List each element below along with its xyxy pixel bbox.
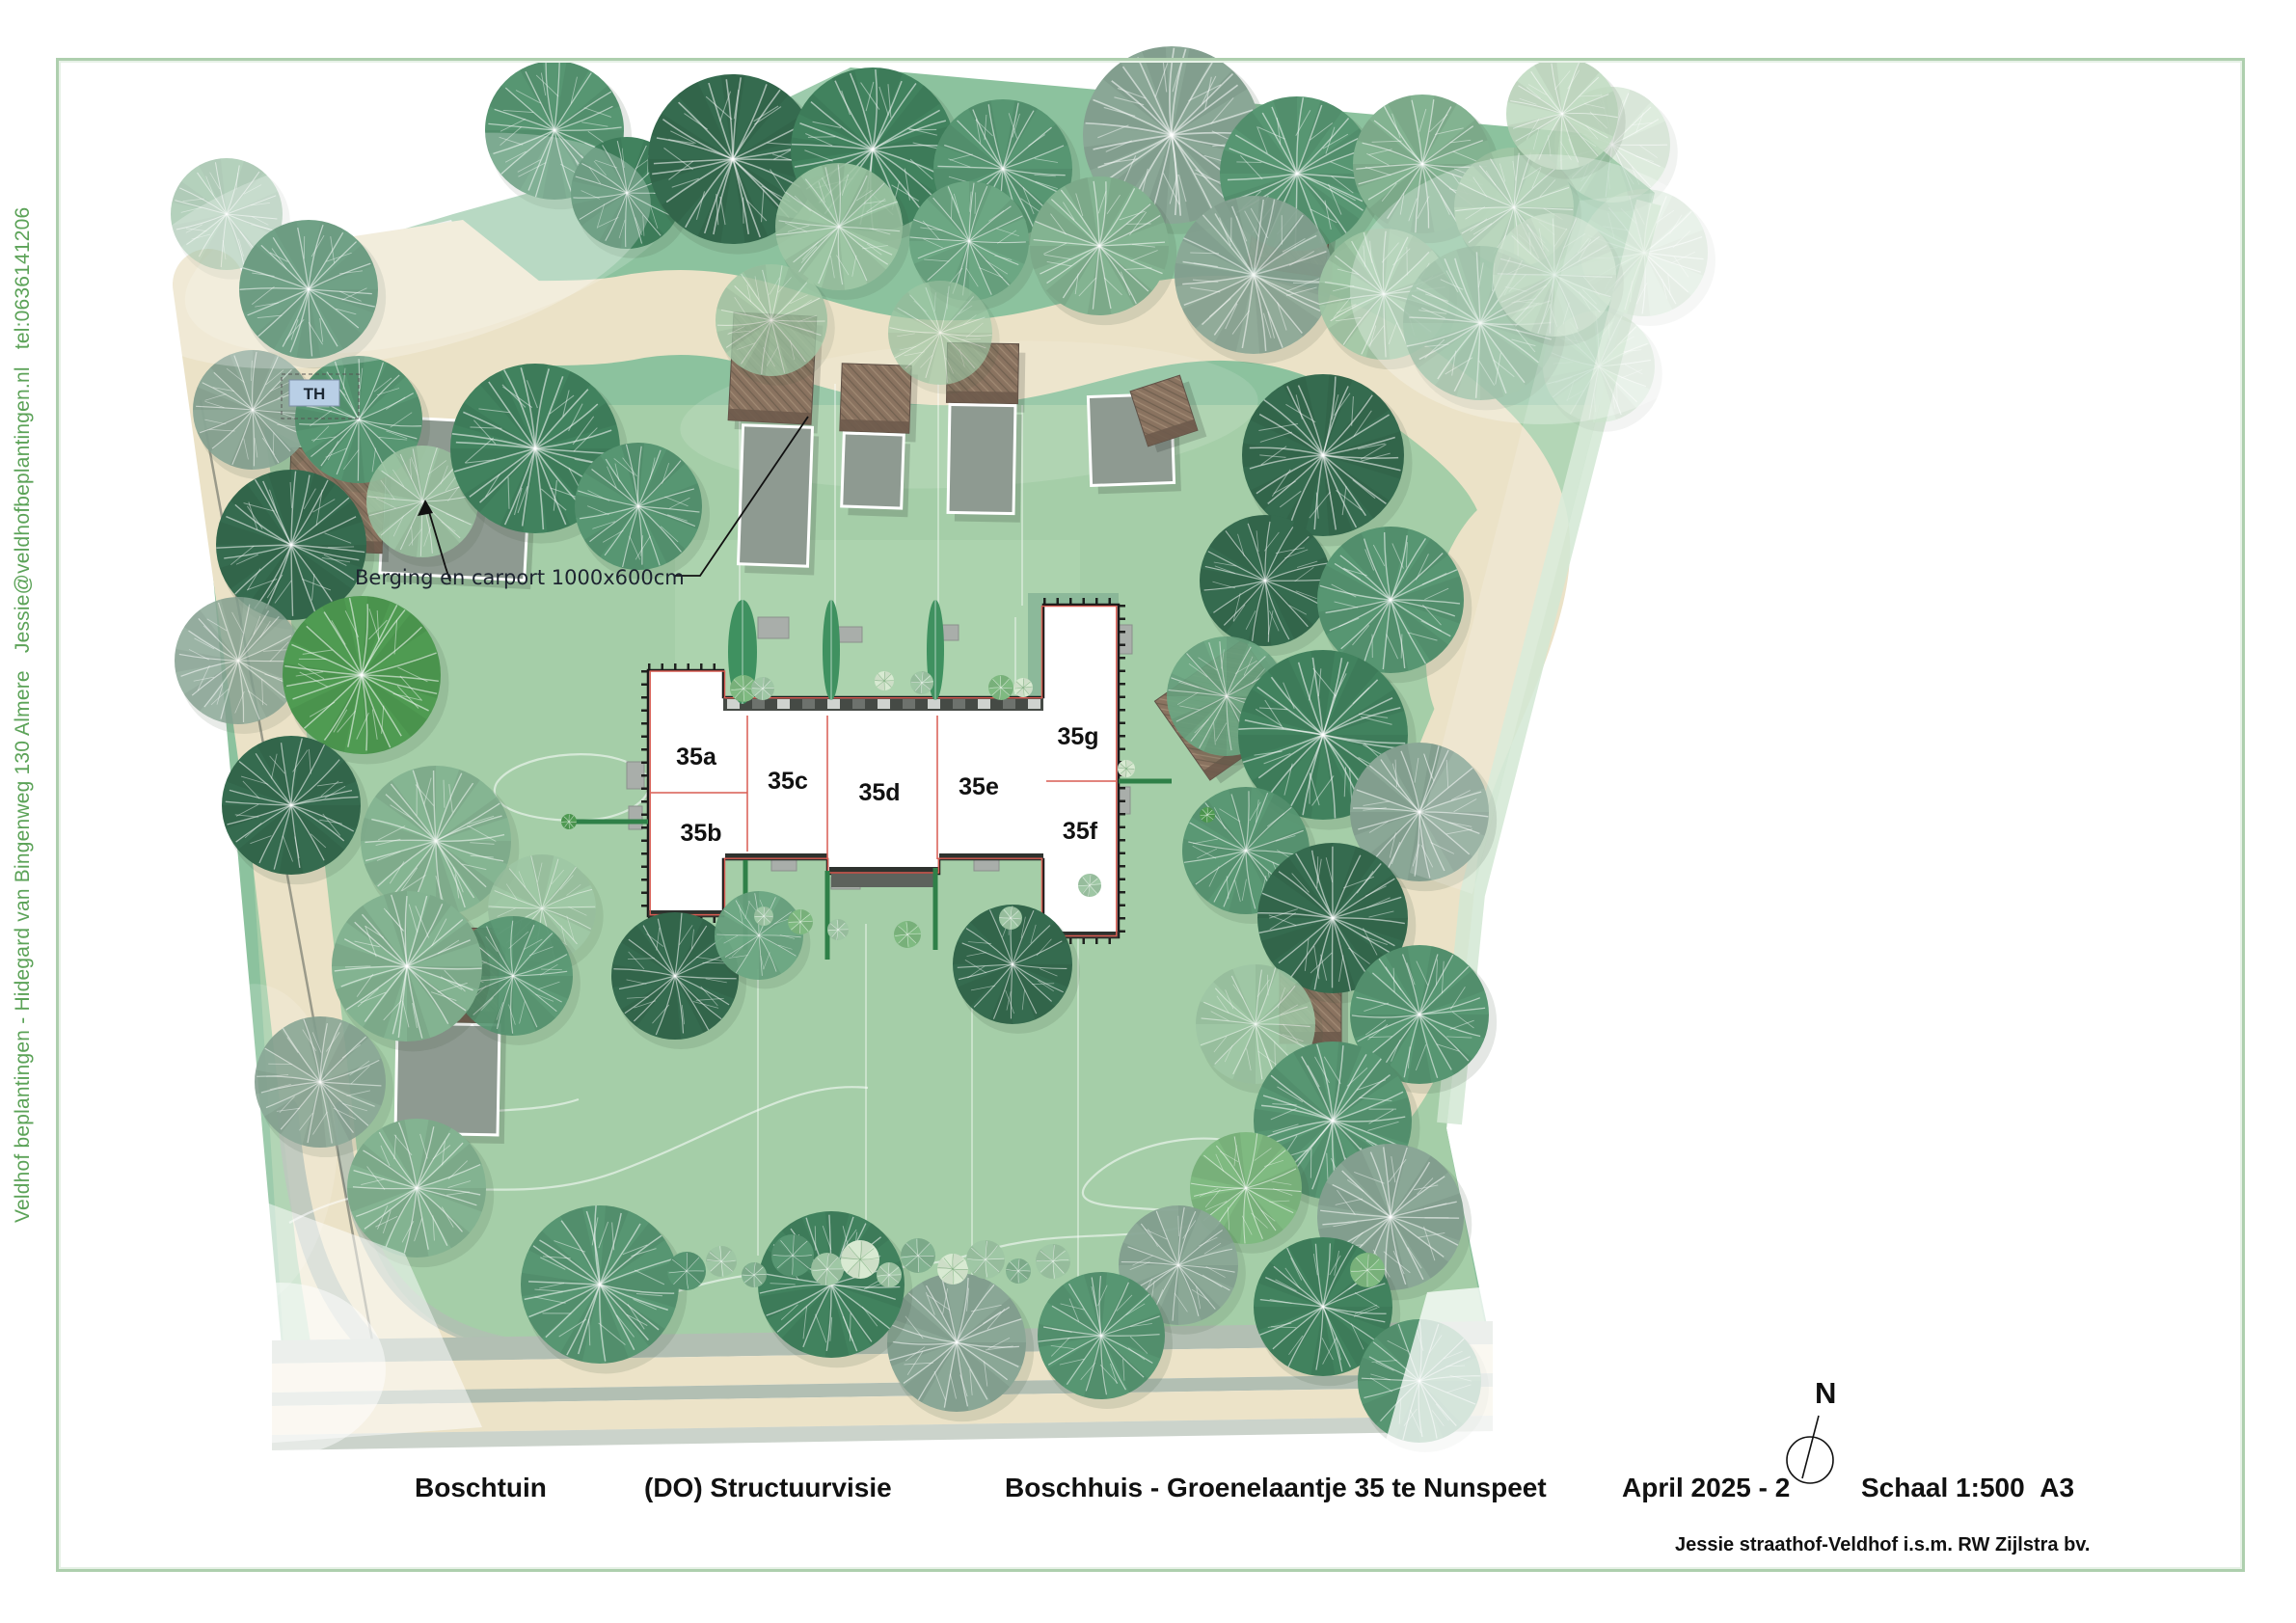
tree-vein-branch xyxy=(703,962,726,963)
fade-overlay xyxy=(1350,154,1736,424)
terrace-tile xyxy=(1003,699,1015,709)
title-project: Boschtuin xyxy=(415,1473,547,1503)
paving-pad xyxy=(837,627,862,642)
south-edge-band xyxy=(725,853,827,860)
unit-label: 35b xyxy=(680,820,721,847)
north-label: N xyxy=(1815,1376,1836,1411)
paper-size: A3 xyxy=(2039,1473,2074,1502)
tree xyxy=(966,1240,1005,1279)
title-phase: (DO) Structuurvisie xyxy=(644,1473,892,1503)
flat-roof-building xyxy=(738,425,819,576)
terrace-tile xyxy=(978,699,990,709)
flat-roof-surface xyxy=(948,404,1015,513)
flat-roof-surface xyxy=(739,425,813,566)
south-edge-band xyxy=(939,853,1043,860)
unit-label: 35e xyxy=(959,773,999,800)
flat-roof-building xyxy=(841,433,910,517)
roof-eave xyxy=(840,419,909,434)
terrace-tile xyxy=(878,699,890,709)
scale-spacer xyxy=(2025,1473,2040,1502)
tree xyxy=(751,677,774,700)
paving-pad xyxy=(1119,625,1132,654)
unit-label: 35a xyxy=(676,744,717,771)
page: { "sidebar": { "text": "Veldhof beplanti… xyxy=(0,0,2296,1623)
title-location: Boschhuis - Groenelaantje 35 te Nunspeet xyxy=(1005,1473,1547,1503)
compass-circle xyxy=(1787,1437,1833,1483)
tree xyxy=(1200,807,1215,823)
terrace-tile xyxy=(752,699,765,709)
tree xyxy=(754,906,773,926)
unit-label: 35g xyxy=(1057,723,1098,750)
terrace-tile xyxy=(777,699,790,709)
tree xyxy=(841,1240,879,1279)
tree xyxy=(561,814,577,829)
tree xyxy=(901,1238,935,1273)
tree xyxy=(1350,1253,1385,1287)
tree xyxy=(1078,874,1101,897)
title-scale: Schaal 1:500 A3 xyxy=(1861,1473,2074,1503)
tree xyxy=(875,671,894,690)
tree-vein-branch xyxy=(808,137,835,138)
tree xyxy=(811,1253,844,1285)
tree xyxy=(894,921,921,948)
scale-value: Schaal 1:500 xyxy=(1861,1473,2025,1502)
terrace-tile xyxy=(827,699,840,709)
tree-vein-branch xyxy=(815,1226,816,1250)
tree xyxy=(877,1262,902,1287)
tree xyxy=(999,906,1022,930)
site-plan: 35a35b35c35d35e35g35f TH xyxy=(0,0,2296,1623)
compass-needle xyxy=(1802,1416,1819,1478)
unit-label: 35c xyxy=(768,768,808,795)
flat-roof-surface xyxy=(842,433,905,508)
tree-vein-branch xyxy=(1310,1149,1311,1178)
carport-annotation: Berging en carport 1000x600cm xyxy=(355,566,685,589)
tree xyxy=(1118,760,1135,777)
fade-overlay xyxy=(174,1283,386,1456)
terrace-tile xyxy=(852,699,865,709)
designer-contact-sidebar: Veldhof beplantingen - Hidegard van Bing… xyxy=(12,162,35,1223)
terrace-tile xyxy=(953,699,965,709)
tree xyxy=(910,671,933,694)
title-date: April 2025 - 2 xyxy=(1622,1473,1790,1503)
tree xyxy=(706,1246,737,1277)
tree-vein xyxy=(359,359,360,419)
terrace-tile xyxy=(802,699,815,709)
tree xyxy=(937,1254,968,1285)
unit-label: 35d xyxy=(858,779,900,806)
tree xyxy=(788,909,813,934)
south-terrace xyxy=(831,874,935,887)
th-label: TH xyxy=(304,385,326,403)
flat-roof-building xyxy=(948,404,1022,522)
tree xyxy=(1036,1244,1070,1279)
tree xyxy=(1013,678,1033,697)
tree xyxy=(988,675,1013,700)
terrace-tile xyxy=(903,699,915,709)
tree xyxy=(827,919,849,940)
tree xyxy=(742,1262,767,1287)
terrace-tile xyxy=(928,699,940,709)
terrace-tile xyxy=(1028,699,1040,709)
unit-label: 35f xyxy=(1063,818,1098,845)
credit-line: Jessie straathof-Veldhof i.s.m. RW Zijls… xyxy=(1675,1534,2091,1556)
paving-pad xyxy=(629,806,642,829)
paving-pad xyxy=(758,617,789,638)
tree xyxy=(771,1234,814,1277)
tree xyxy=(1006,1258,1031,1284)
tree xyxy=(667,1252,706,1290)
